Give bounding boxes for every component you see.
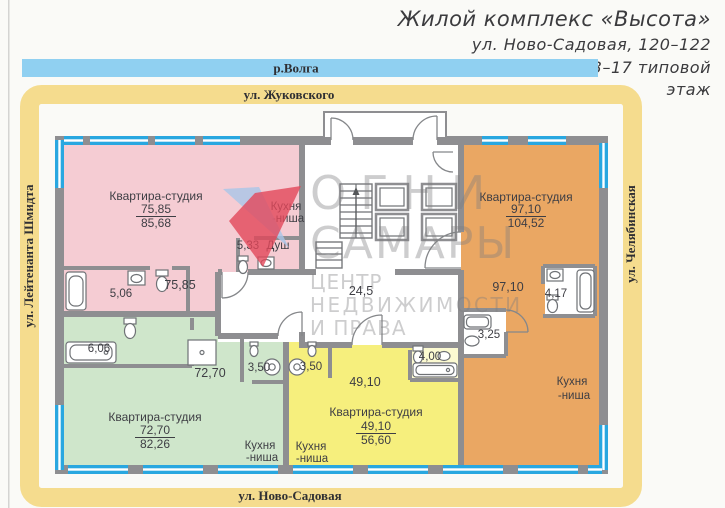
kitchen-label: Кухня <box>557 376 588 388</box>
page-title: Жилой комплекс «Высота» <box>396 7 711 31</box>
room-area: 75,85 <box>164 278 195 292</box>
hall-area: 3,50 <box>248 362 270 374</box>
toilet-bowl <box>548 300 558 313</box>
door-gap <box>331 136 353 146</box>
floor-range-line: 3–17 типовой <box>592 58 711 77</box>
street-top-label: ул. Жуковского <box>244 87 335 102</box>
shower-cabin-icon <box>188 340 216 365</box>
street-bottom-label: ул. Ново-Садовая <box>238 488 341 503</box>
living-area: 72,70 <box>140 423 170 437</box>
kitchen-label: -ниша <box>296 453 329 465</box>
watermark-line2: САМАРЫ <box>310 218 516 269</box>
bath-area: 4,00 <box>419 351 441 363</box>
door-gap <box>413 136 437 146</box>
toilet-bowl <box>308 346 316 357</box>
kitchen-label: Кухня <box>296 441 327 453</box>
bath-area: 4,17 <box>545 288 567 300</box>
total-area: 85,68 <box>141 216 171 230</box>
watermark-line4: НЕДВИЖИМОСТИ <box>310 293 523 317</box>
floor-word-line: этаж <box>667 80 711 99</box>
room-area: 97,10 <box>492 280 523 294</box>
watermark-line1: ОГНИ <box>310 166 499 220</box>
toilet-icon <box>156 270 168 276</box>
entrance-vestibule <box>324 112 446 138</box>
watermark-line5: И ПРАВА <box>310 316 407 340</box>
total-area: 82,26 <box>140 437 170 451</box>
apartment-name: Квартира-студия <box>329 405 422 419</box>
street-right-label: ул. Челябинская <box>623 185 638 283</box>
address-line: ул. Ново-Садовая, 120–122 <box>471 35 711 54</box>
floor-plan-page: Жилой комплекс «Высота» ул. Ново-Садовая… <box>0 0 725 508</box>
living-area: 75,85 <box>141 202 171 216</box>
hall-area: 3,50 <box>300 361 322 373</box>
corridor-area <box>218 272 306 342</box>
apartment-name: Квартира-студия <box>108 410 201 424</box>
room-area: 49,10 <box>349 375 380 389</box>
apartment-name: Квартира-студия <box>109 189 202 203</box>
toilet-bowl <box>239 261 248 274</box>
total-area: 56,60 <box>361 433 391 447</box>
toilet-bowl <box>250 346 258 357</box>
river-bar: р.Волга <box>22 59 598 77</box>
living-area: 49,10 <box>361 419 391 433</box>
wc-area: 3,25 <box>478 329 500 341</box>
kitchen-label: -ниша <box>246 452 279 464</box>
watermark-line3: ЦЕНТР <box>310 270 382 294</box>
kitchen-label: -ниша <box>558 390 591 402</box>
living-area: 97,10 <box>511 202 541 216</box>
river-label: р.Волга <box>273 61 319 76</box>
kitchen-label: Кухня <box>245 440 276 452</box>
page-edge-line <box>8 0 10 508</box>
bath-area: 5,06 <box>110 288 132 300</box>
toilet-bowl <box>125 324 136 339</box>
bath-area: 6,06 <box>88 343 110 355</box>
floor-plan-canvas: Жилой комплекс «Высота» ул. Ново-Садовая… <box>0 0 725 508</box>
street-left-label: ул. Лейтенанта Шмидта <box>21 184 36 328</box>
room-area: 72,70 <box>194 366 225 380</box>
